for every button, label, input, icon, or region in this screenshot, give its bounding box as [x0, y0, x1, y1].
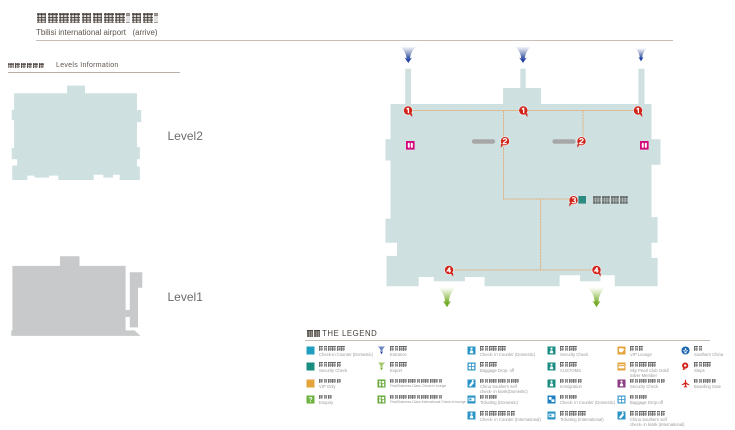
svg-text:?: ? — [308, 397, 312, 404]
